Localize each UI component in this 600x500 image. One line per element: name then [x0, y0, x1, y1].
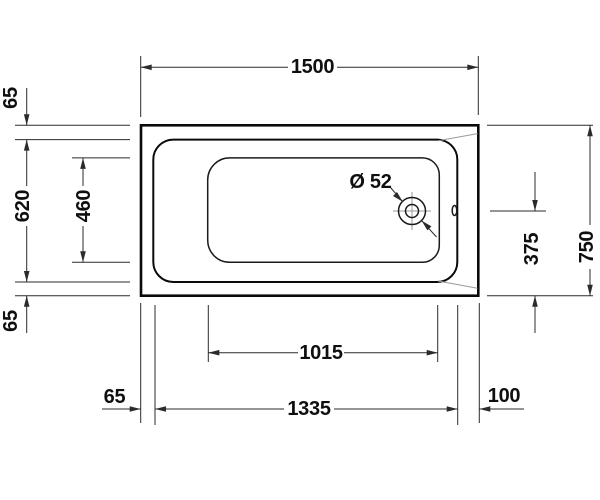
dim-label-1500: 1500 [291, 57, 334, 77]
dim-1015-arrow-left [208, 350, 219, 356]
head-end-chamfer-bottom [438, 281, 478, 288]
dim-label-460: 460 [74, 190, 94, 222]
dim-375-arrow-down [532, 200, 538, 211]
tub-basin-floor [208, 158, 440, 262]
dim-label-drain-diameter: Ø 52 [349, 172, 391, 192]
dim-label-100: 100 [488, 386, 520, 406]
overflow-hole [452, 206, 457, 216]
drain-leader-arrow-upper [393, 192, 403, 202]
drain [391, 188, 437, 238]
dim-1500-arrow-left [141, 65, 152, 71]
dim-460-arrow-down [80, 251, 86, 262]
dim-label-620: 620 [13, 190, 33, 222]
dim-label-65-bottom: 65 [1, 310, 21, 332]
dim-label-65-top: 65 [1, 87, 21, 109]
dim-label-750: 750 [577, 231, 597, 263]
dim-100-arrow [479, 406, 490, 412]
dim-620-arrow-up [24, 140, 30, 151]
dim-65left-arrow [130, 406, 141, 412]
dim-375-arrow-up [532, 296, 538, 307]
extension-lines [15, 56, 593, 425]
dim-1015-arrow-right [427, 350, 438, 356]
dim-label-375: 375 [522, 232, 542, 264]
head-end-chamfer-top [438, 134, 478, 141]
dim-65top-arrow [24, 114, 30, 125]
dim-label-1015: 1015 [299, 343, 342, 363]
dim-1335-arrow-left [155, 406, 166, 412]
bathtub-technical-drawing: 1500 65 620 460 65 750 375 1015 1335 65 … [0, 0, 600, 500]
drain-leader-arrow-lower [422, 221, 432, 231]
dim-label-65-left: 65 [104, 387, 126, 407]
dim-620-arrow-down [24, 271, 30, 282]
dim-460-arrow-up [80, 158, 86, 169]
dim-1335-arrow-right [447, 406, 458, 412]
dim-750-arrow-down [587, 285, 593, 296]
dim-750-arrow-up [587, 125, 593, 136]
dim-label-1335: 1335 [287, 399, 330, 419]
dim-65bottom-arrow [24, 296, 30, 307]
dim-1500-arrow-right [467, 65, 478, 71]
